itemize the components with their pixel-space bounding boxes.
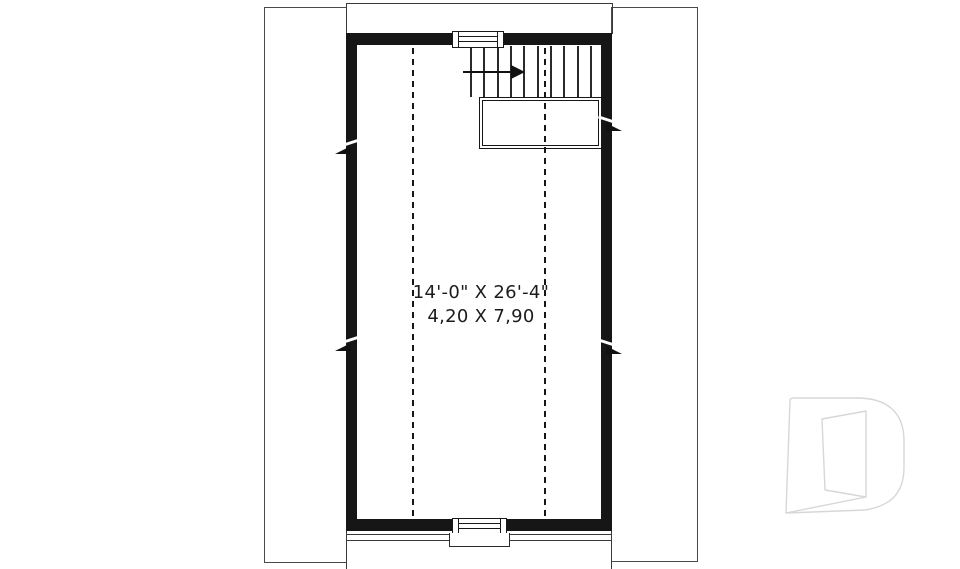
stairs-direction-arrow-head-icon <box>511 65 525 79</box>
stair-riser-line <box>537 46 539 97</box>
room-dimensions-imperial: 14'-0" X 26'-4" <box>367 281 595 305</box>
stairs-direction-arrow <box>463 71 513 73</box>
lower-wall-edge-left <box>346 531 347 569</box>
stairwell-opening-inner-rail <box>482 100 599 146</box>
left-roof-panel <box>264 7 347 563</box>
bottom-window <box>452 518 507 534</box>
left-wall <box>346 33 357 531</box>
top-window <box>452 31 504 48</box>
bottom-window-sill <box>449 533 510 547</box>
drummond-d-logo-watermark-icon <box>783 392 910 520</box>
stair-riser-line <box>550 46 552 97</box>
stair-riser-line <box>577 46 579 97</box>
window-glass-line <box>459 36 497 37</box>
floor-plan-canvas: 14'-0" X 26'-4" 4,20 X 7,90 <box>0 0 960 569</box>
stair-riser-line <box>563 46 565 97</box>
right-wall <box>601 33 612 531</box>
room-dimensions: 14'-0" X 26'-4" 4,20 X 7,90 <box>367 281 595 329</box>
stair-riser-line <box>590 46 592 97</box>
window-glass-line <box>459 528 500 529</box>
room-dimensions-metric: 4,20 X 7,90 <box>367 305 595 329</box>
window-frame-cap <box>458 519 459 533</box>
lower-wall-outline-top <box>346 3 613 34</box>
window-frame-cap <box>497 32 498 47</box>
window-frame-cap <box>500 519 501 533</box>
right-roof-panel <box>611 7 698 562</box>
stairwell-opening <box>479 97 602 149</box>
window-frame-cap <box>458 32 459 47</box>
window-glass-line <box>459 523 500 524</box>
window-glass-line <box>459 41 497 42</box>
lower-wall-edge-right <box>611 531 612 569</box>
